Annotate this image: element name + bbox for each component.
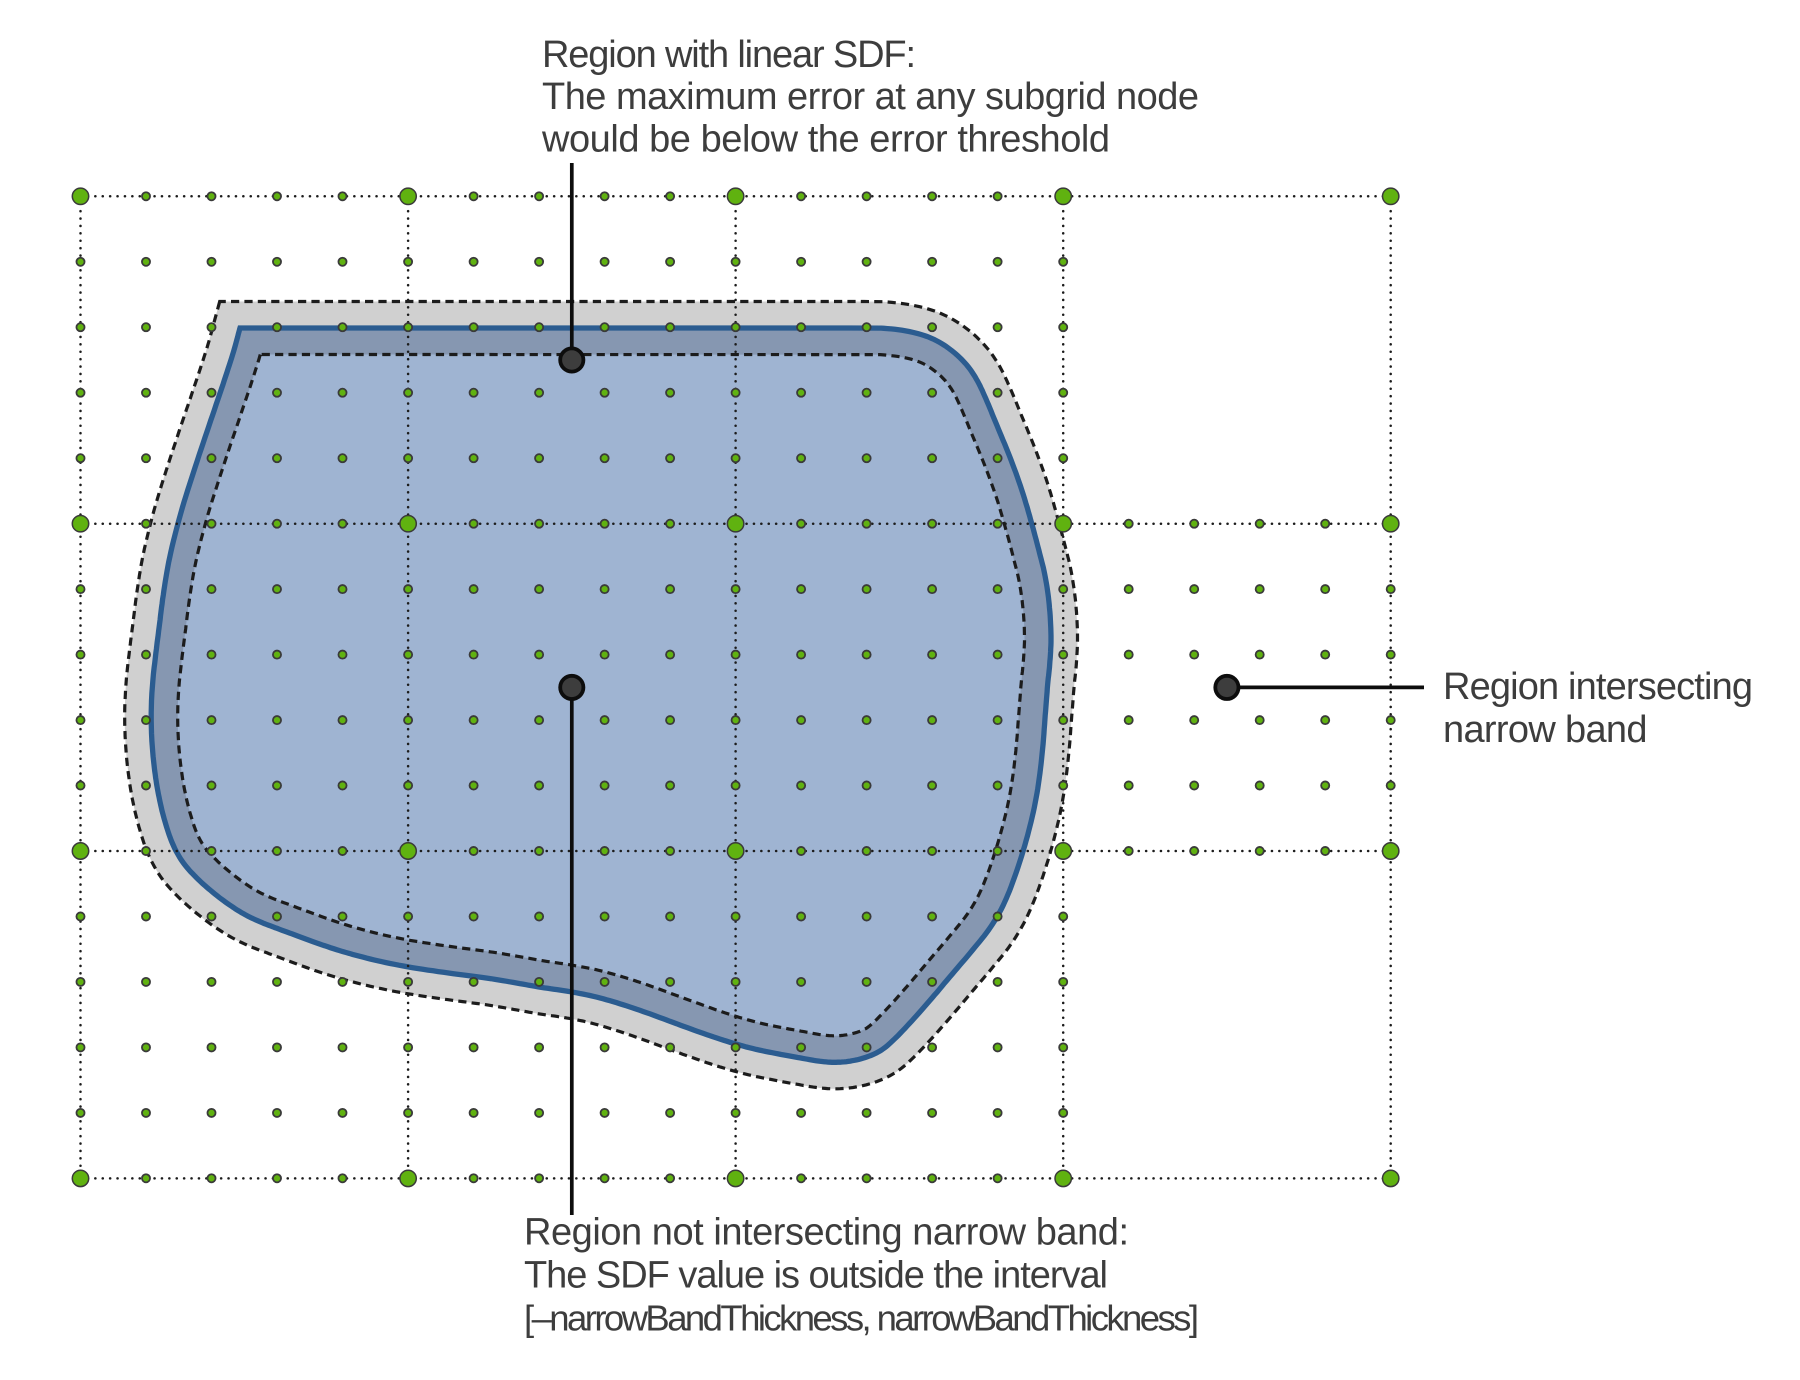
svg-text:Region with linear SDF:: Region with linear SDF: — [542, 34, 916, 76]
svg-text:The maximum error at any subgr: The maximum error at any subgrid node — [542, 76, 1199, 118]
svg-text:Region not intersecting narrow: Region not intersecting narrow band: — [524, 1212, 1129, 1254]
svg-text:Region intersecting: Region intersecting — [1443, 666, 1753, 708]
svg-text:would be below the error thres: would be below the error threshold — [541, 118, 1110, 160]
svg-text:The SDF value is outside the i: The SDF value is outside the interval — [524, 1255, 1108, 1297]
svg-text:narrow band: narrow band — [1443, 709, 1648, 751]
svg-text:[–narrowBandThickness, narrowB: [–narrowBandThickness, narrowBandThickne… — [524, 1298, 1199, 1339]
